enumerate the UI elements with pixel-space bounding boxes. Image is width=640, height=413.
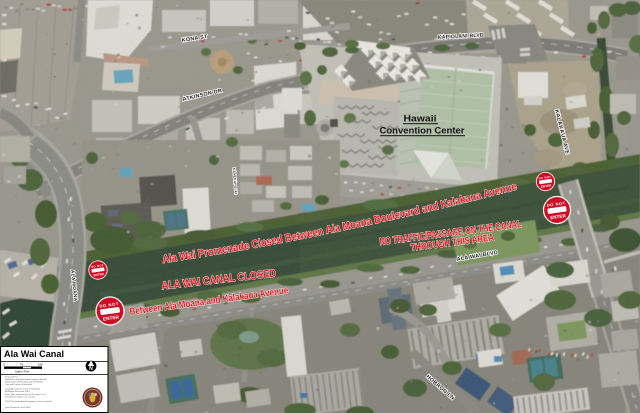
svg-text:N: N [89, 366, 93, 372]
svg-text:Convention Center: Convention Center [380, 126, 465, 137]
svg-text:Ala Wai Canal: Ala Wai Canal [4, 349, 64, 360]
svg-text:Date Prepared: June 2016: Date Prepared: June 2016 [5, 406, 31, 409]
svg-text:City and County of Honolulu: City and County of Honolulu [5, 383, 33, 386]
svg-text:150: 150 [38, 363, 43, 367]
svg-text:All Rights Reserved 2016: All Rights Reserved 2016 [5, 390, 30, 393]
svg-text:Prepared For:: Prepared For: [5, 376, 19, 379]
svg-text:intended to replace site surve: intended to replace site survey. [5, 396, 36, 399]
svg-text:Scale in Feet: Scale in Feet [15, 371, 29, 374]
svg-text:2013 Pictometry Aerial Imagery: 2013 Pictometry Aerial Imagery, 6 inch r… [5, 400, 53, 403]
svg-text:Hawaii: Hawaii [404, 114, 437, 125]
